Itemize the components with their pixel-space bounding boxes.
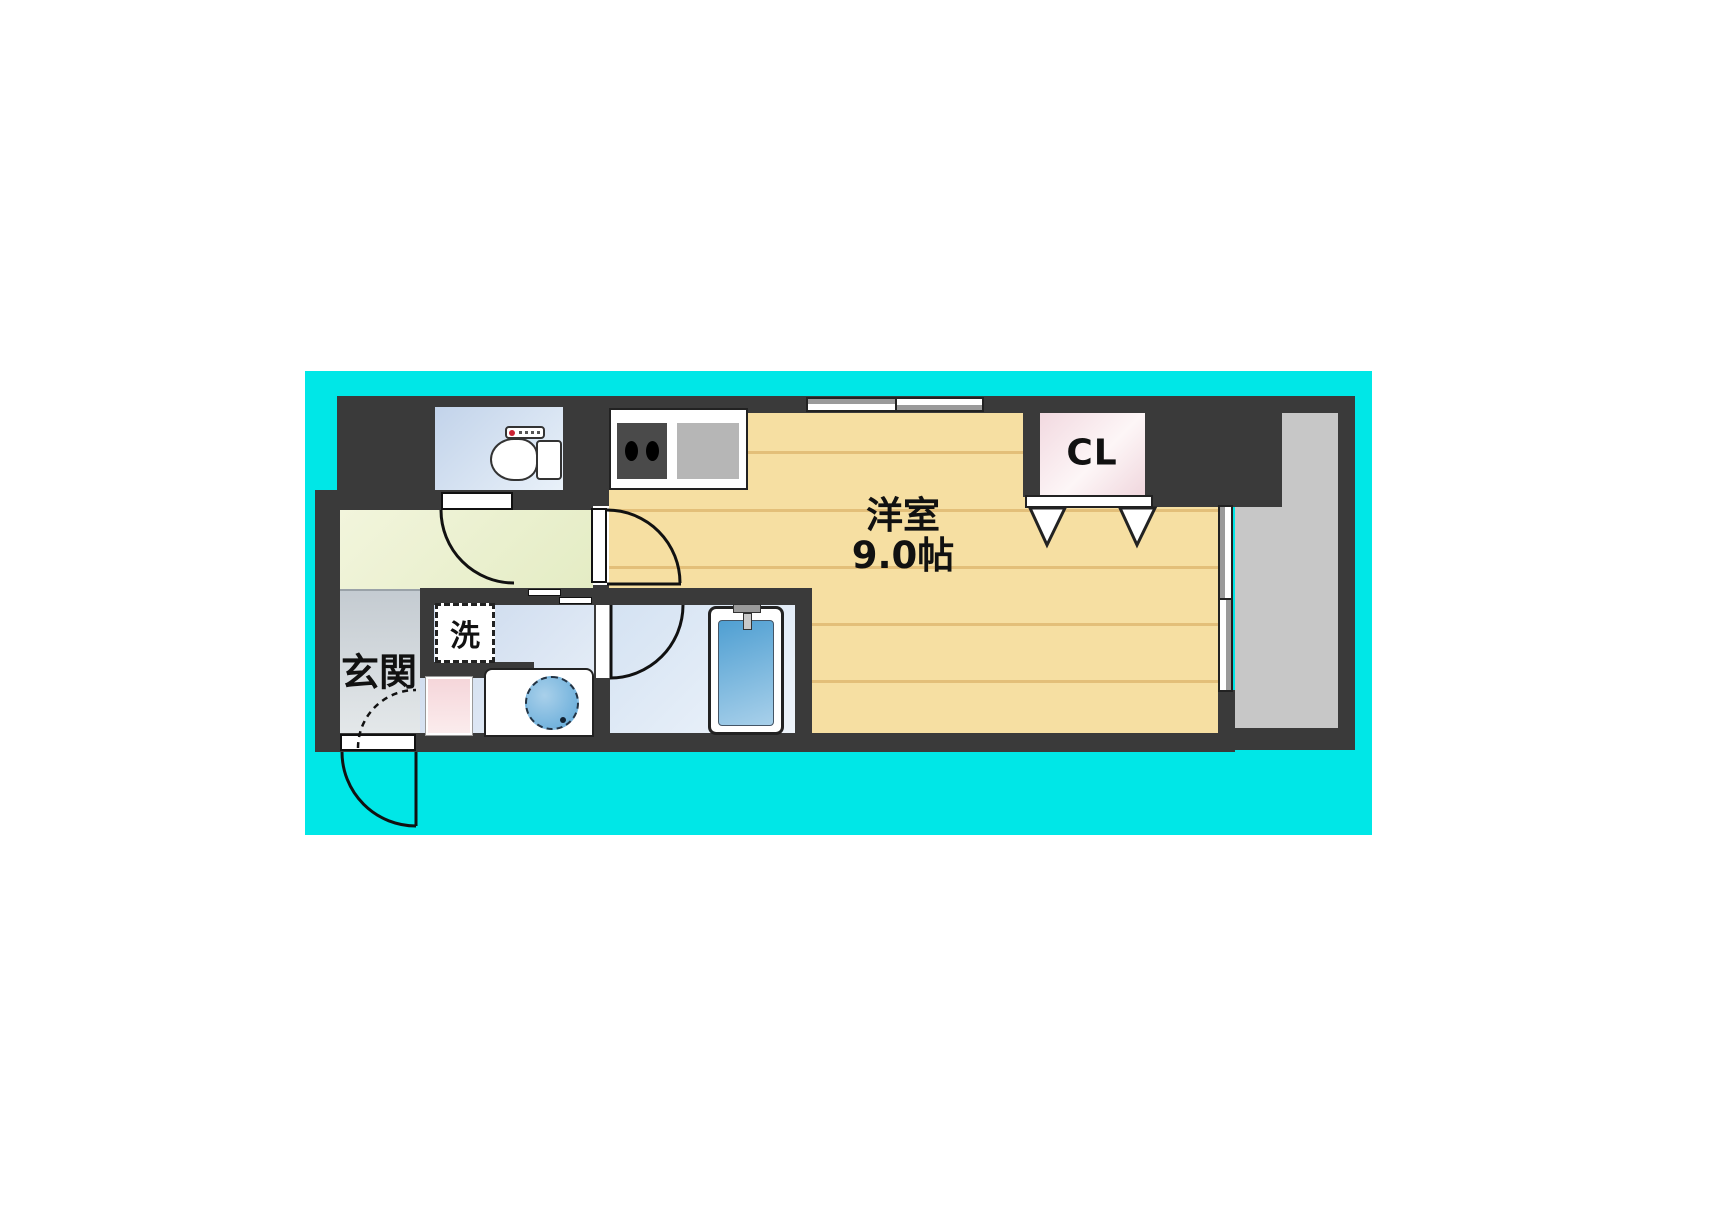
closet-door-triangle bbox=[1030, 508, 1065, 545]
closet-label: CL bbox=[1066, 433, 1117, 474]
toilet-door-swing bbox=[441, 510, 514, 583]
floor-plan-canvas: 玄関 洗 CL 洋室 9.0帖 bbox=[0, 0, 1726, 1226]
door-swing-overlay bbox=[0, 0, 1726, 1226]
entrance-label: 玄関 bbox=[341, 642, 417, 697]
front-door-swing bbox=[342, 752, 416, 826]
laundry-label: 洗 bbox=[450, 611, 480, 655]
main-room-size-label: 9.0帖 bbox=[852, 525, 955, 579]
closet-door-triangle bbox=[1120, 508, 1155, 545]
front-door-inner-swing bbox=[358, 690, 416, 748]
kitchen-door-swing bbox=[607, 510, 680, 583]
bathroom-door-swing bbox=[610, 605, 683, 678]
